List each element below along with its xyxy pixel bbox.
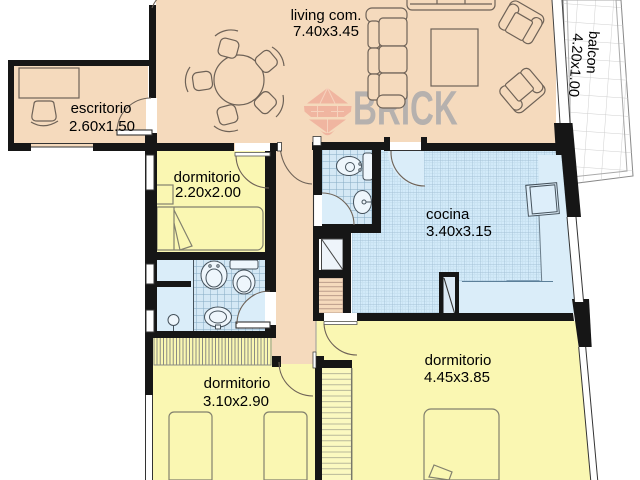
svg-text:7.40x3.45: 7.40x3.45 xyxy=(293,23,359,40)
svg-text:cocina: cocina xyxy=(426,206,470,223)
svg-text:dormitorio: dormitorio xyxy=(425,352,492,369)
svg-text:escritorio: escritorio xyxy=(71,100,132,117)
svg-text:2.60x1.50: 2.60x1.50 xyxy=(69,118,135,135)
svg-text:4.45x3.85: 4.45x3.85 xyxy=(424,369,490,386)
svg-text:3.10x2.90: 3.10x2.90 xyxy=(203,393,269,410)
svg-text:dormitorio: dormitorio xyxy=(204,375,271,392)
svg-text:living com.: living com. xyxy=(291,7,362,24)
svg-text:2.20x2.00: 2.20x2.00 xyxy=(175,184,241,201)
svg-text:3.40x3.15: 3.40x3.15 xyxy=(426,223,492,240)
